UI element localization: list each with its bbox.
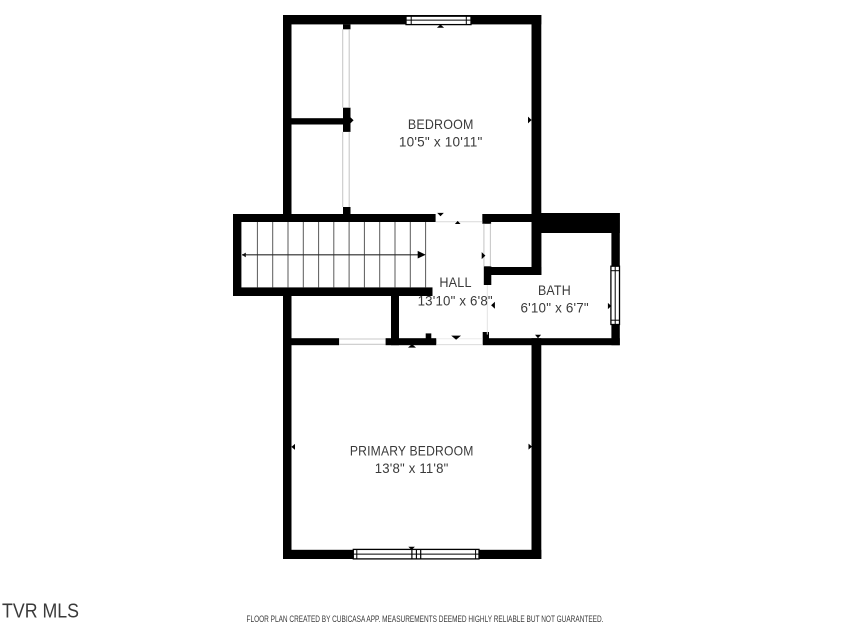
- svg-text:HALL: HALL: [439, 274, 471, 290]
- svg-text:BEDROOM: BEDROOM: [408, 116, 474, 132]
- svg-text:13'10" x 6'8": 13'10" x 6'8": [418, 292, 493, 308]
- svg-text:PRIMARY BEDROOM: PRIMARY BEDROOM: [350, 442, 474, 458]
- svg-text:13'8" x 11'8": 13'8" x 11'8": [375, 460, 449, 476]
- svg-text:6'10" x 6'7": 6'10" x 6'7": [521, 299, 589, 315]
- svg-text:FLOOR PLAN CREATED BY CUBICASA: FLOOR PLAN CREATED BY CUBICASA APP. MEAS…: [247, 614, 604, 624]
- svg-text:10'5" x 10'11": 10'5" x 10'11": [399, 133, 483, 149]
- svg-text:BATH: BATH: [538, 282, 571, 298]
- svg-text:TVR MLS: TVR MLS: [2, 601, 79, 623]
